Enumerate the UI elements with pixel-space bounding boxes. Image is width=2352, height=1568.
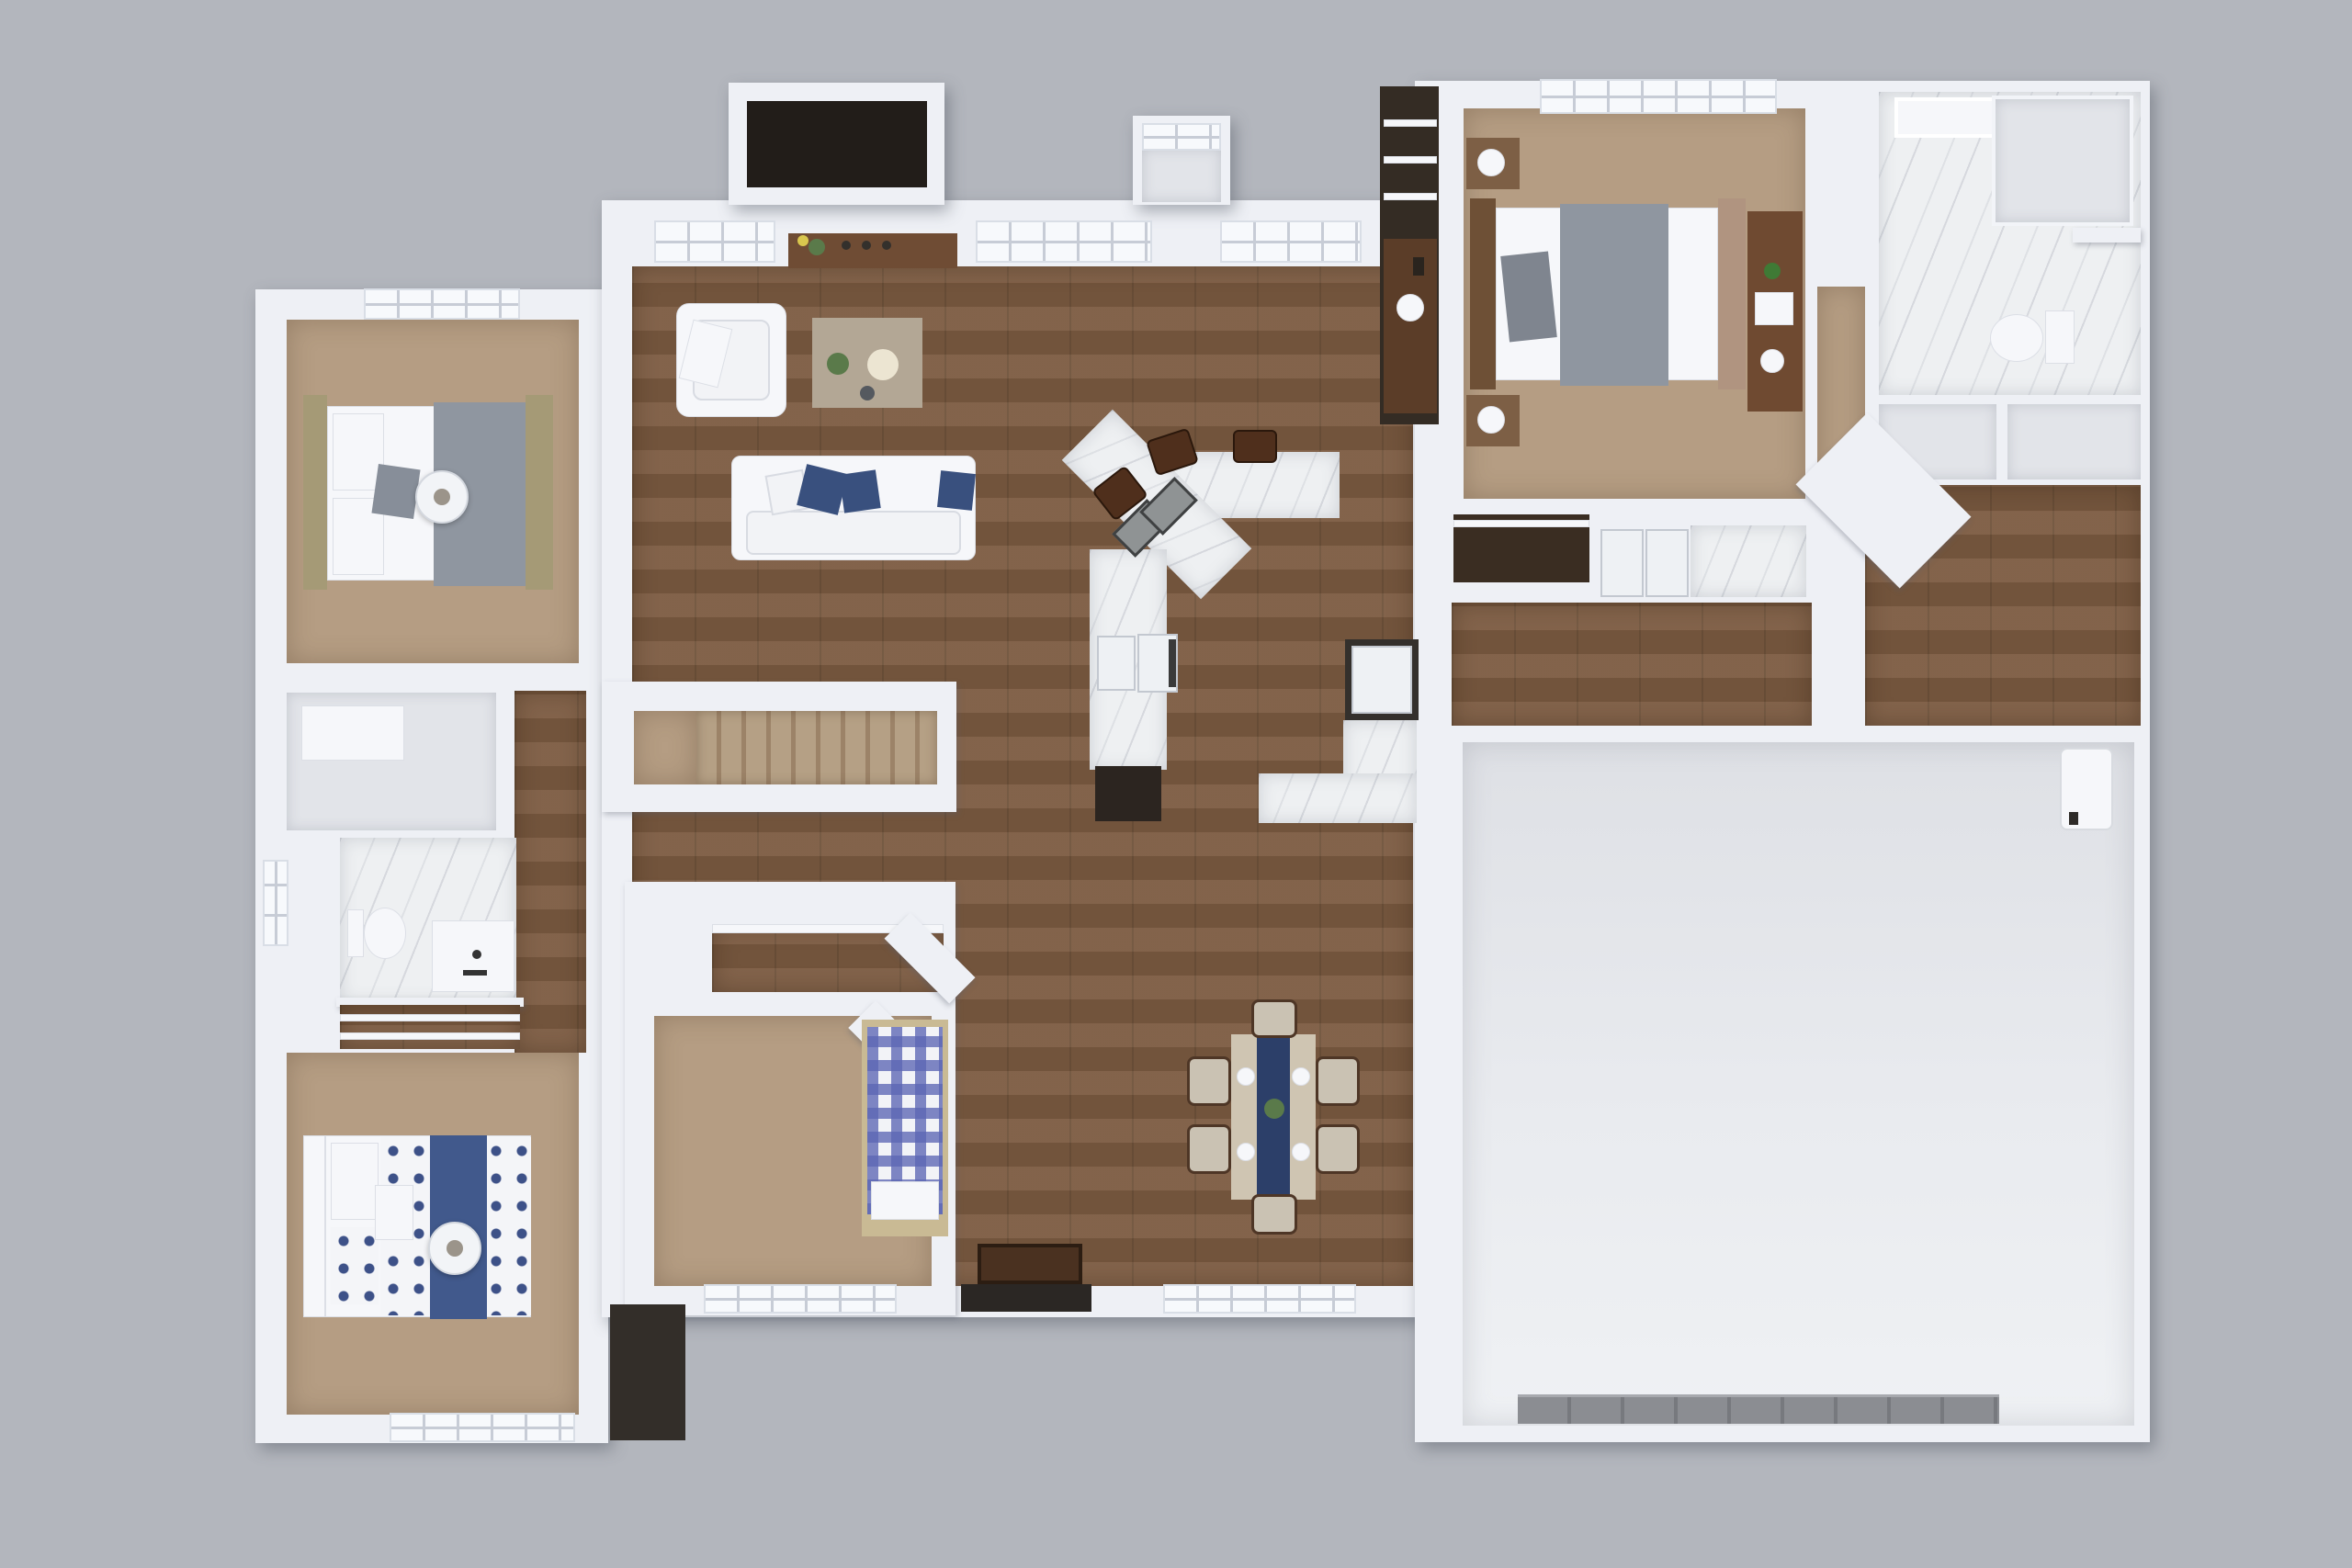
bathroom1-faucet-knob — [472, 950, 481, 959]
bathroom1-toilet-tank — [347, 909, 364, 957]
floor-plan — [0, 0, 2352, 1568]
master-blanket — [1560, 204, 1668, 386]
console-bottle-1 — [842, 241, 851, 250]
sofa-pillow-navy-3 — [937, 470, 976, 511]
window-kitchen-bay — [1142, 123, 1221, 151]
master-headboard — [1470, 198, 1496, 389]
bed2-pillow-small — [375, 1185, 413, 1240]
dining-chair-bottom — [1251, 1194, 1297, 1235]
pantry-counter — [1384, 239, 1437, 413]
pantry-shelf-2 — [1384, 156, 1437, 164]
master-footboard — [1718, 198, 1746, 389]
window-master — [1540, 79, 1777, 114]
bathroom1-window — [263, 860, 288, 946]
bed3-pillow — [871, 1181, 939, 1220]
masterbath-partition — [2073, 228, 2141, 243]
console-bottle-3 — [882, 241, 891, 250]
coffee-table-plant — [827, 353, 849, 375]
console-bottle-2 — [862, 241, 871, 250]
laundry-counter — [1690, 525, 1806, 597]
dining-plate-2 — [1237, 1143, 1255, 1161]
stairs-steps — [696, 711, 937, 784]
window-living-2 — [976, 220, 1152, 263]
entry-threshold — [961, 1284, 1091, 1312]
pantry-shelf-1 — [1384, 119, 1437, 127]
master-pillow — [1500, 252, 1557, 343]
dining-centerpiece — [1264, 1099, 1284, 1119]
pantry-basin — [1396, 294, 1424, 321]
masterbath-toilet-tank — [2045, 310, 2075, 364]
stairs-landing — [634, 711, 696, 784]
fireplace-interior — [747, 101, 927, 187]
dining-chair-top — [1251, 999, 1297, 1038]
dining-plate-3 — [1292, 1067, 1310, 1086]
sofa-seat — [746, 511, 961, 555]
window-bedroom2 — [390, 1413, 575, 1442]
linen-closet-floor — [340, 1005, 520, 1049]
master-lamp-2 — [1477, 406, 1505, 434]
laundry-hall-floor — [1452, 603, 1812, 726]
dryer — [1645, 529, 1689, 597]
console-flowers — [797, 235, 808, 246]
pantry-shelf-3 — [1384, 193, 1437, 200]
right-closet2-floor — [2007, 404, 2141, 479]
washer — [1600, 529, 1644, 597]
fridge-top — [1351, 646, 1412, 714]
bed2-pillow-pattern — [331, 1227, 379, 1304]
masterbath-skylight — [1894, 97, 2003, 138]
dishwasher — [1097, 636, 1136, 691]
water-heater — [2060, 748, 2113, 830]
window-bedroom1 — [364, 288, 520, 320]
stove-control-band — [1169, 639, 1176, 687]
dresser-dish — [1760, 349, 1784, 373]
kitchen-bay-interior — [1142, 149, 1221, 202]
window-living-1 — [654, 220, 775, 263]
window-living-3 — [1220, 220, 1362, 263]
garage-floor — [1463, 742, 2134, 1426]
bar-stool-3 — [1233, 430, 1277, 463]
bed2-headboard — [303, 1135, 325, 1317]
bathroom1-toilet-bowl — [364, 908, 406, 959]
dining-chair-right-1 — [1316, 1056, 1360, 1106]
console-plant — [808, 239, 825, 255]
coffee-table-bowl — [860, 386, 875, 400]
linen-shelf-2 — [340, 1032, 520, 1040]
masterbath-shower — [1992, 96, 2133, 226]
master-lamp-1 — [1477, 149, 1505, 176]
window-dining — [1163, 1284, 1356, 1314]
window-bedroom3 — [704, 1284, 897, 1314]
dining-chair-left-1 — [1187, 1056, 1231, 1106]
dining-plate-4 — [1292, 1143, 1310, 1161]
dining-chair-left-2 — [1187, 1124, 1231, 1174]
dining-plate-1 — [1237, 1067, 1255, 1086]
bed2-fan-hub — [447, 1240, 463, 1257]
entry-door-mat — [978, 1244, 1082, 1284]
bed1-headboard — [303, 395, 327, 590]
bed2-pillow-white — [331, 1143, 379, 1220]
dresser-tray — [1755, 292, 1793, 325]
masterbath-toilet-bowl — [1990, 314, 2043, 362]
counter-L-horizontal — [1259, 773, 1417, 823]
linen-shelf-1 — [340, 1014, 520, 1021]
bathroom1-faucet — [463, 970, 487, 976]
bed1-footboard — [526, 395, 553, 590]
closet-dresser — [301, 705, 404, 761]
dining-chair-right-2 — [1316, 1124, 1360, 1174]
garage-door — [1518, 1394, 1999, 1424]
pantry-bottle — [1413, 257, 1424, 276]
kitchen-pantry-closet — [1095, 766, 1161, 821]
bed1-accent-pillow — [371, 464, 420, 519]
water-heater-valve — [2069, 812, 2078, 825]
hall-left-floor — [514, 691, 586, 1053]
laundry-closet-shelf — [1453, 520, 1589, 527]
dresser-plant — [1764, 263, 1781, 279]
coffee-table-tray — [867, 349, 899, 380]
sofa-pillow-navy-2 — [839, 469, 880, 513]
porch-shadow — [610, 1304, 685, 1440]
bed1-fan-hub — [434, 489, 450, 505]
